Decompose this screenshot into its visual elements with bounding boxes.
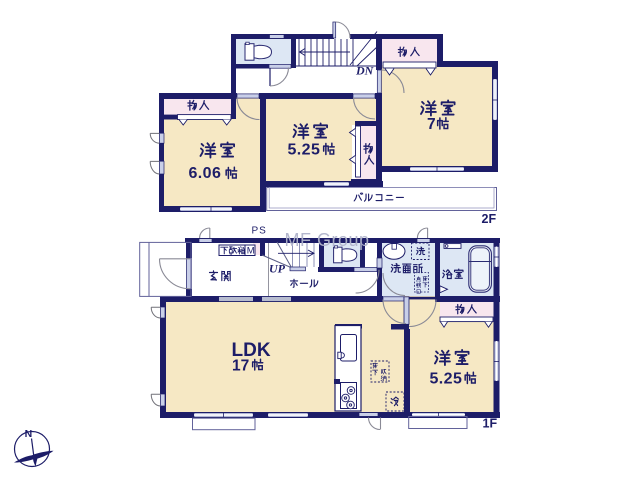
svg-text:N: N (25, 428, 33, 440)
svg-text:M: M (247, 246, 255, 257)
svg-text:2F: 2F (482, 212, 497, 226)
svg-text:PS: PS (252, 226, 267, 237)
svg-text:17: 17 (232, 358, 249, 375)
svg-text:5.25: 5.25 (288, 141, 321, 158)
svg-text:DN: DN (355, 64, 375, 78)
svg-text:6.06: 6.06 (189, 165, 222, 182)
svg-text:7: 7 (427, 116, 436, 133)
svg-text:MF Group: MF Group (285, 230, 370, 250)
svg-text:1F: 1F (483, 417, 498, 431)
svg-text:5.25: 5.25 (430, 371, 463, 388)
svg-text:UP: UP (269, 262, 286, 276)
